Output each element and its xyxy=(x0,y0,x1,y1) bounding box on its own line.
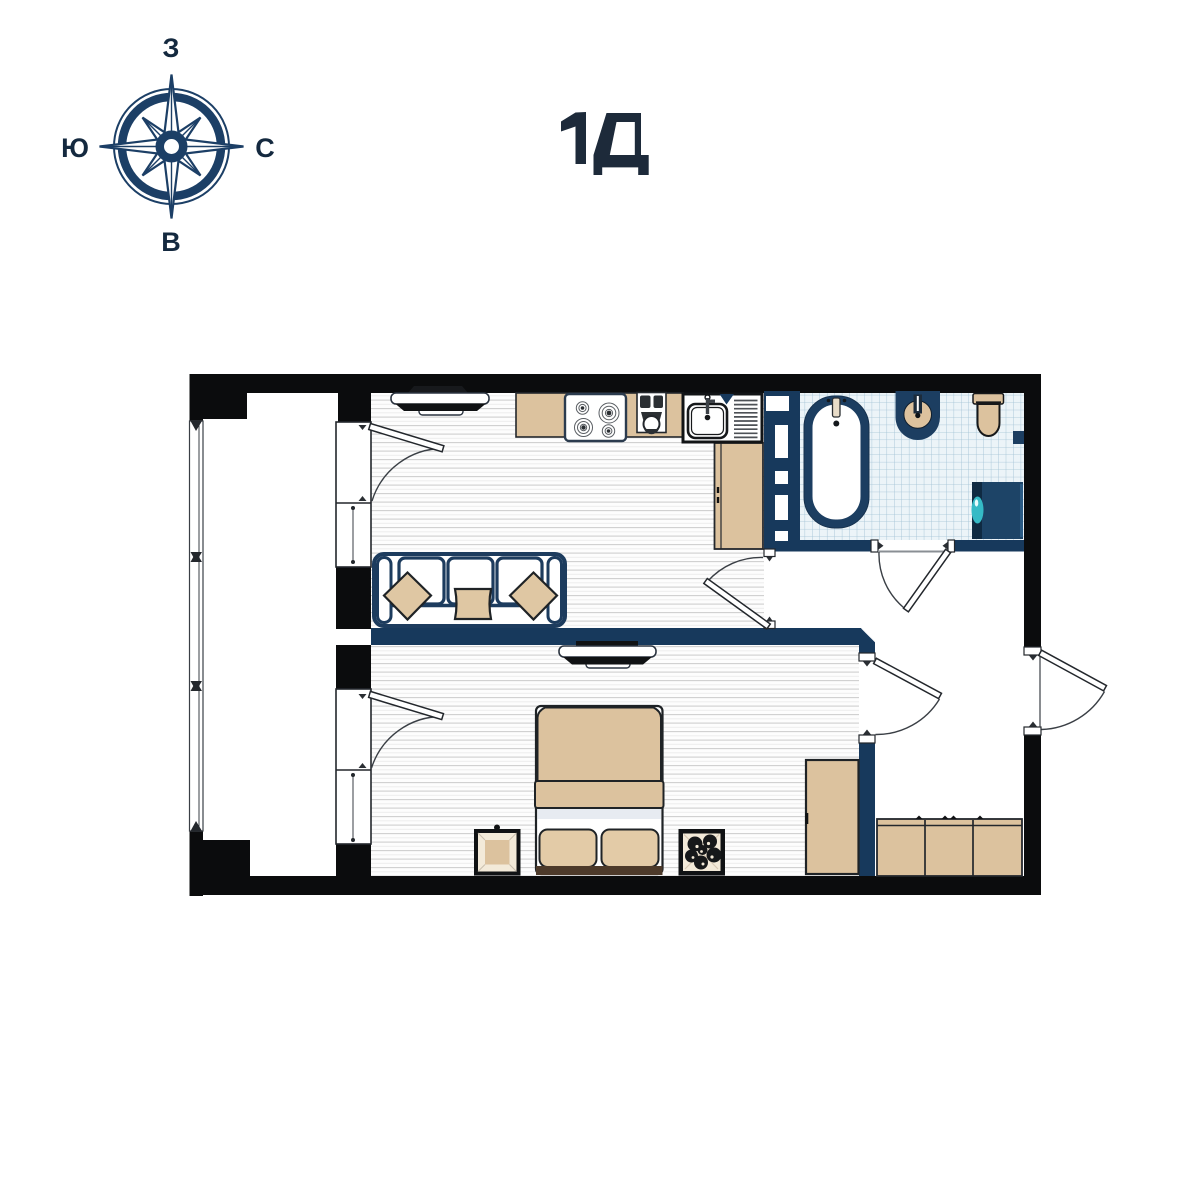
svg-text:С: С xyxy=(255,133,275,163)
svg-text:В: В xyxy=(161,227,181,257)
svg-text:З: З xyxy=(163,33,180,63)
svg-text:Ю: Ю xyxy=(61,133,89,163)
